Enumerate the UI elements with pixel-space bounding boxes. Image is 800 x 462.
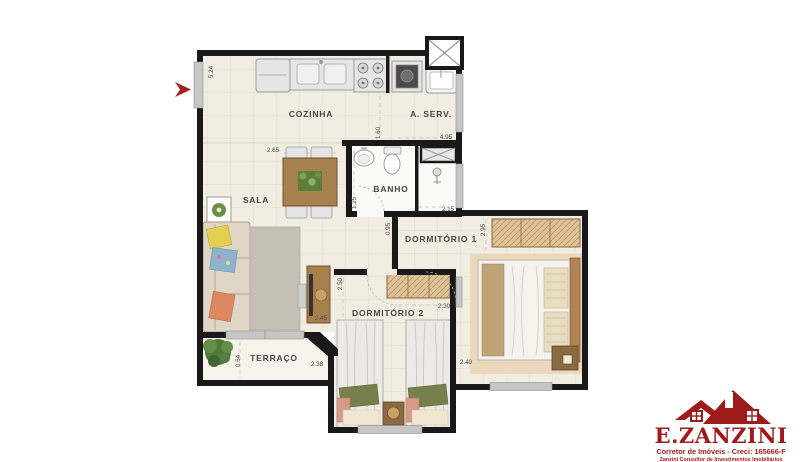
laundry-tub	[426, 67, 457, 93]
sofa	[203, 222, 250, 332]
single-bed-left	[337, 320, 383, 428]
shower-window	[456, 164, 463, 208]
room-label-banho: BANHO	[373, 184, 408, 194]
dorm1-door-leaf	[456, 277, 462, 307]
dim-hall-depth: 0.95	[385, 222, 392, 235]
dim-rack-width: 2.45	[315, 315, 328, 322]
room-label-sala: SALA	[243, 195, 269, 205]
entry-arrow-icon	[175, 82, 191, 97]
houses-icon	[661, 384, 781, 428]
floorplan-page: COZINHA A. SERV. SALA BANHO DORMITÓRIO 1…	[0, 0, 800, 462]
room-label-terraco: TERRAÇO	[250, 353, 298, 363]
room-label-aserv: A. SERV.	[410, 109, 452, 119]
dim-dorm1-width: 2.40	[460, 359, 473, 366]
toilet	[384, 147, 401, 174]
dim-dorm2-width: 2.30	[438, 303, 451, 310]
dim-banho-width: 2.15	[442, 206, 455, 213]
dim-aserv-width: 4.95	[440, 134, 453, 141]
stove	[354, 59, 387, 92]
entry-door-leaf	[194, 62, 203, 108]
single-bed-right	[406, 320, 452, 428]
logo-subtitle: Zanzini Consultor de Investimentos Imobi…	[642, 457, 800, 462]
room-label-dormitorio1: DORMITÓRIO 1	[405, 233, 477, 244]
dim-terraco-depth: 0.64	[235, 354, 242, 367]
nightstand-dorm1	[552, 346, 578, 370]
fridge	[256, 59, 290, 92]
dim-terraco-width: 2.38	[311, 361, 324, 368]
room-label-dormitorio2: DORMITÓRIO 2	[352, 307, 424, 318]
shaft-bath	[421, 147, 456, 162]
service-window	[456, 74, 463, 132]
logo-brand: E.ZANZINI	[642, 425, 800, 446]
wardrobe-dorm1	[492, 219, 580, 247]
dim-sala-width: 2.65	[267, 147, 280, 154]
dim-cozinha-depth: 1.60	[375, 126, 382, 139]
dorm1-window	[490, 383, 552, 391]
room-label-cozinha: COZINHA	[289, 109, 333, 119]
dim-banho-depth: 1.25	[351, 196, 358, 209]
dim-entry-wall: 5.24	[208, 65, 215, 78]
realtor-logo: E.ZANZINI Corretor de Imóveis - Creci: 1…	[642, 384, 800, 462]
sink-counter	[290, 59, 354, 90]
shaft-top	[427, 38, 462, 68]
side-table-plant	[207, 197, 231, 223]
living-rug	[250, 227, 300, 330]
dim-dorm2-depth: 2.50	[337, 277, 344, 290]
nightstand-dorm2	[383, 402, 404, 425]
logo-tagline: Corretor de Imóveis - Creci: 165666-F	[642, 447, 800, 456]
dorm2-window	[358, 426, 422, 434]
dim-dorm1-depth: 2.95	[480, 223, 487, 236]
washing-machine	[392, 61, 422, 92]
